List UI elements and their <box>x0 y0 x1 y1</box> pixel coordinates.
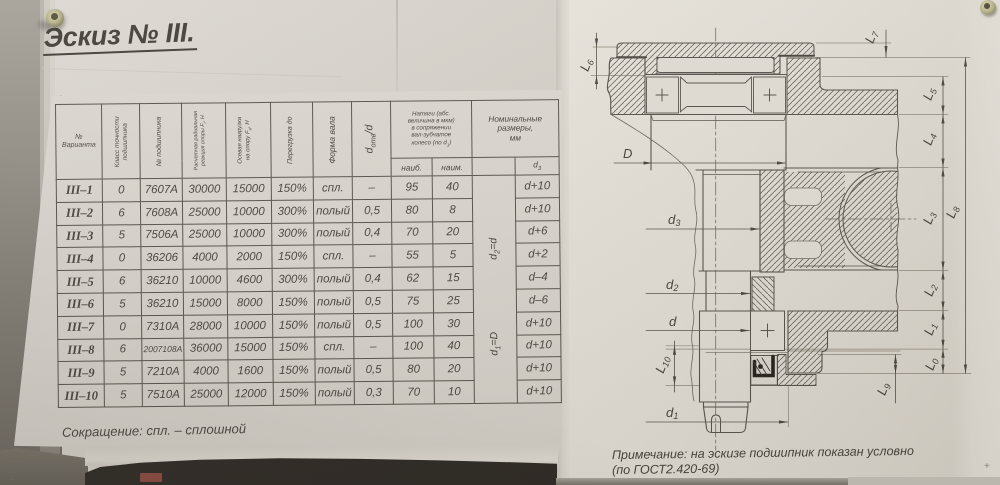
svg-text:L1: L1 <box>921 320 940 337</box>
svg-text:L3: L3 <box>920 209 939 226</box>
svg-text:L4: L4 <box>920 130 939 147</box>
svg-text:d1: d1 <box>666 405 678 421</box>
svg-text:L2: L2 <box>921 281 940 298</box>
svg-text:L9: L9 <box>874 380 893 397</box>
svg-text:L8: L8 <box>943 203 962 220</box>
svg-text:D: D <box>623 146 632 161</box>
svg-text:d2: d2 <box>666 277 678 293</box>
svg-text:L5: L5 <box>920 84 940 102</box>
svg-text:d3: d3 <box>668 212 680 228</box>
svg-text:d: d <box>669 314 677 329</box>
svg-text:L0: L0 <box>922 355 941 372</box>
svg-text:L6: L6 <box>577 56 596 73</box>
svg-text:L10: L10 <box>652 354 673 376</box>
